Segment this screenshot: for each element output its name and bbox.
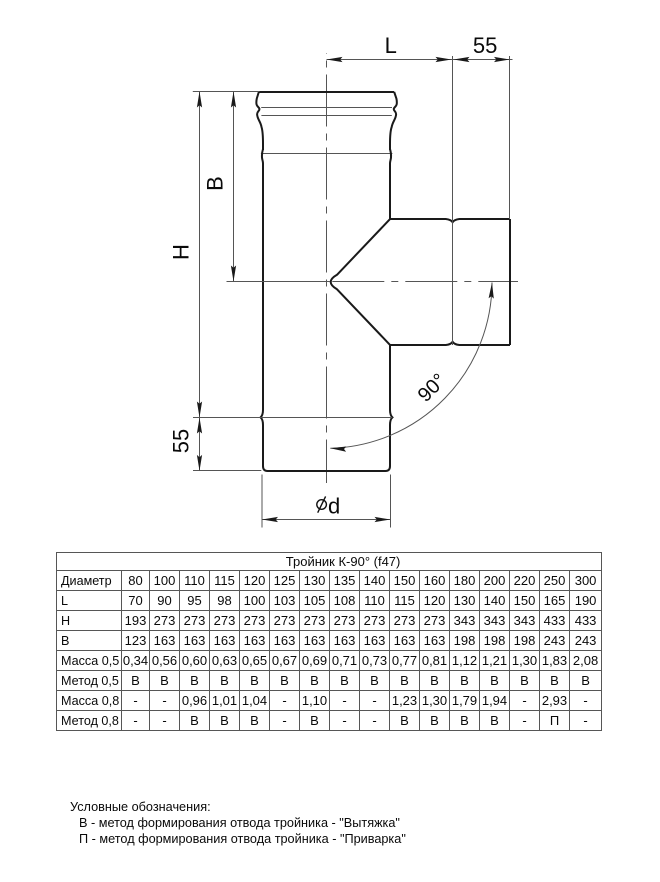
- svg-text:90°: 90°: [414, 370, 451, 407]
- svg-text:d: d: [328, 493, 340, 518]
- svg-text:L: L: [385, 33, 397, 58]
- svg-text:55: 55: [169, 429, 194, 453]
- svg-text:B: B: [203, 176, 228, 191]
- svg-text:55: 55: [473, 33, 497, 58]
- svg-text:H: H: [169, 244, 194, 260]
